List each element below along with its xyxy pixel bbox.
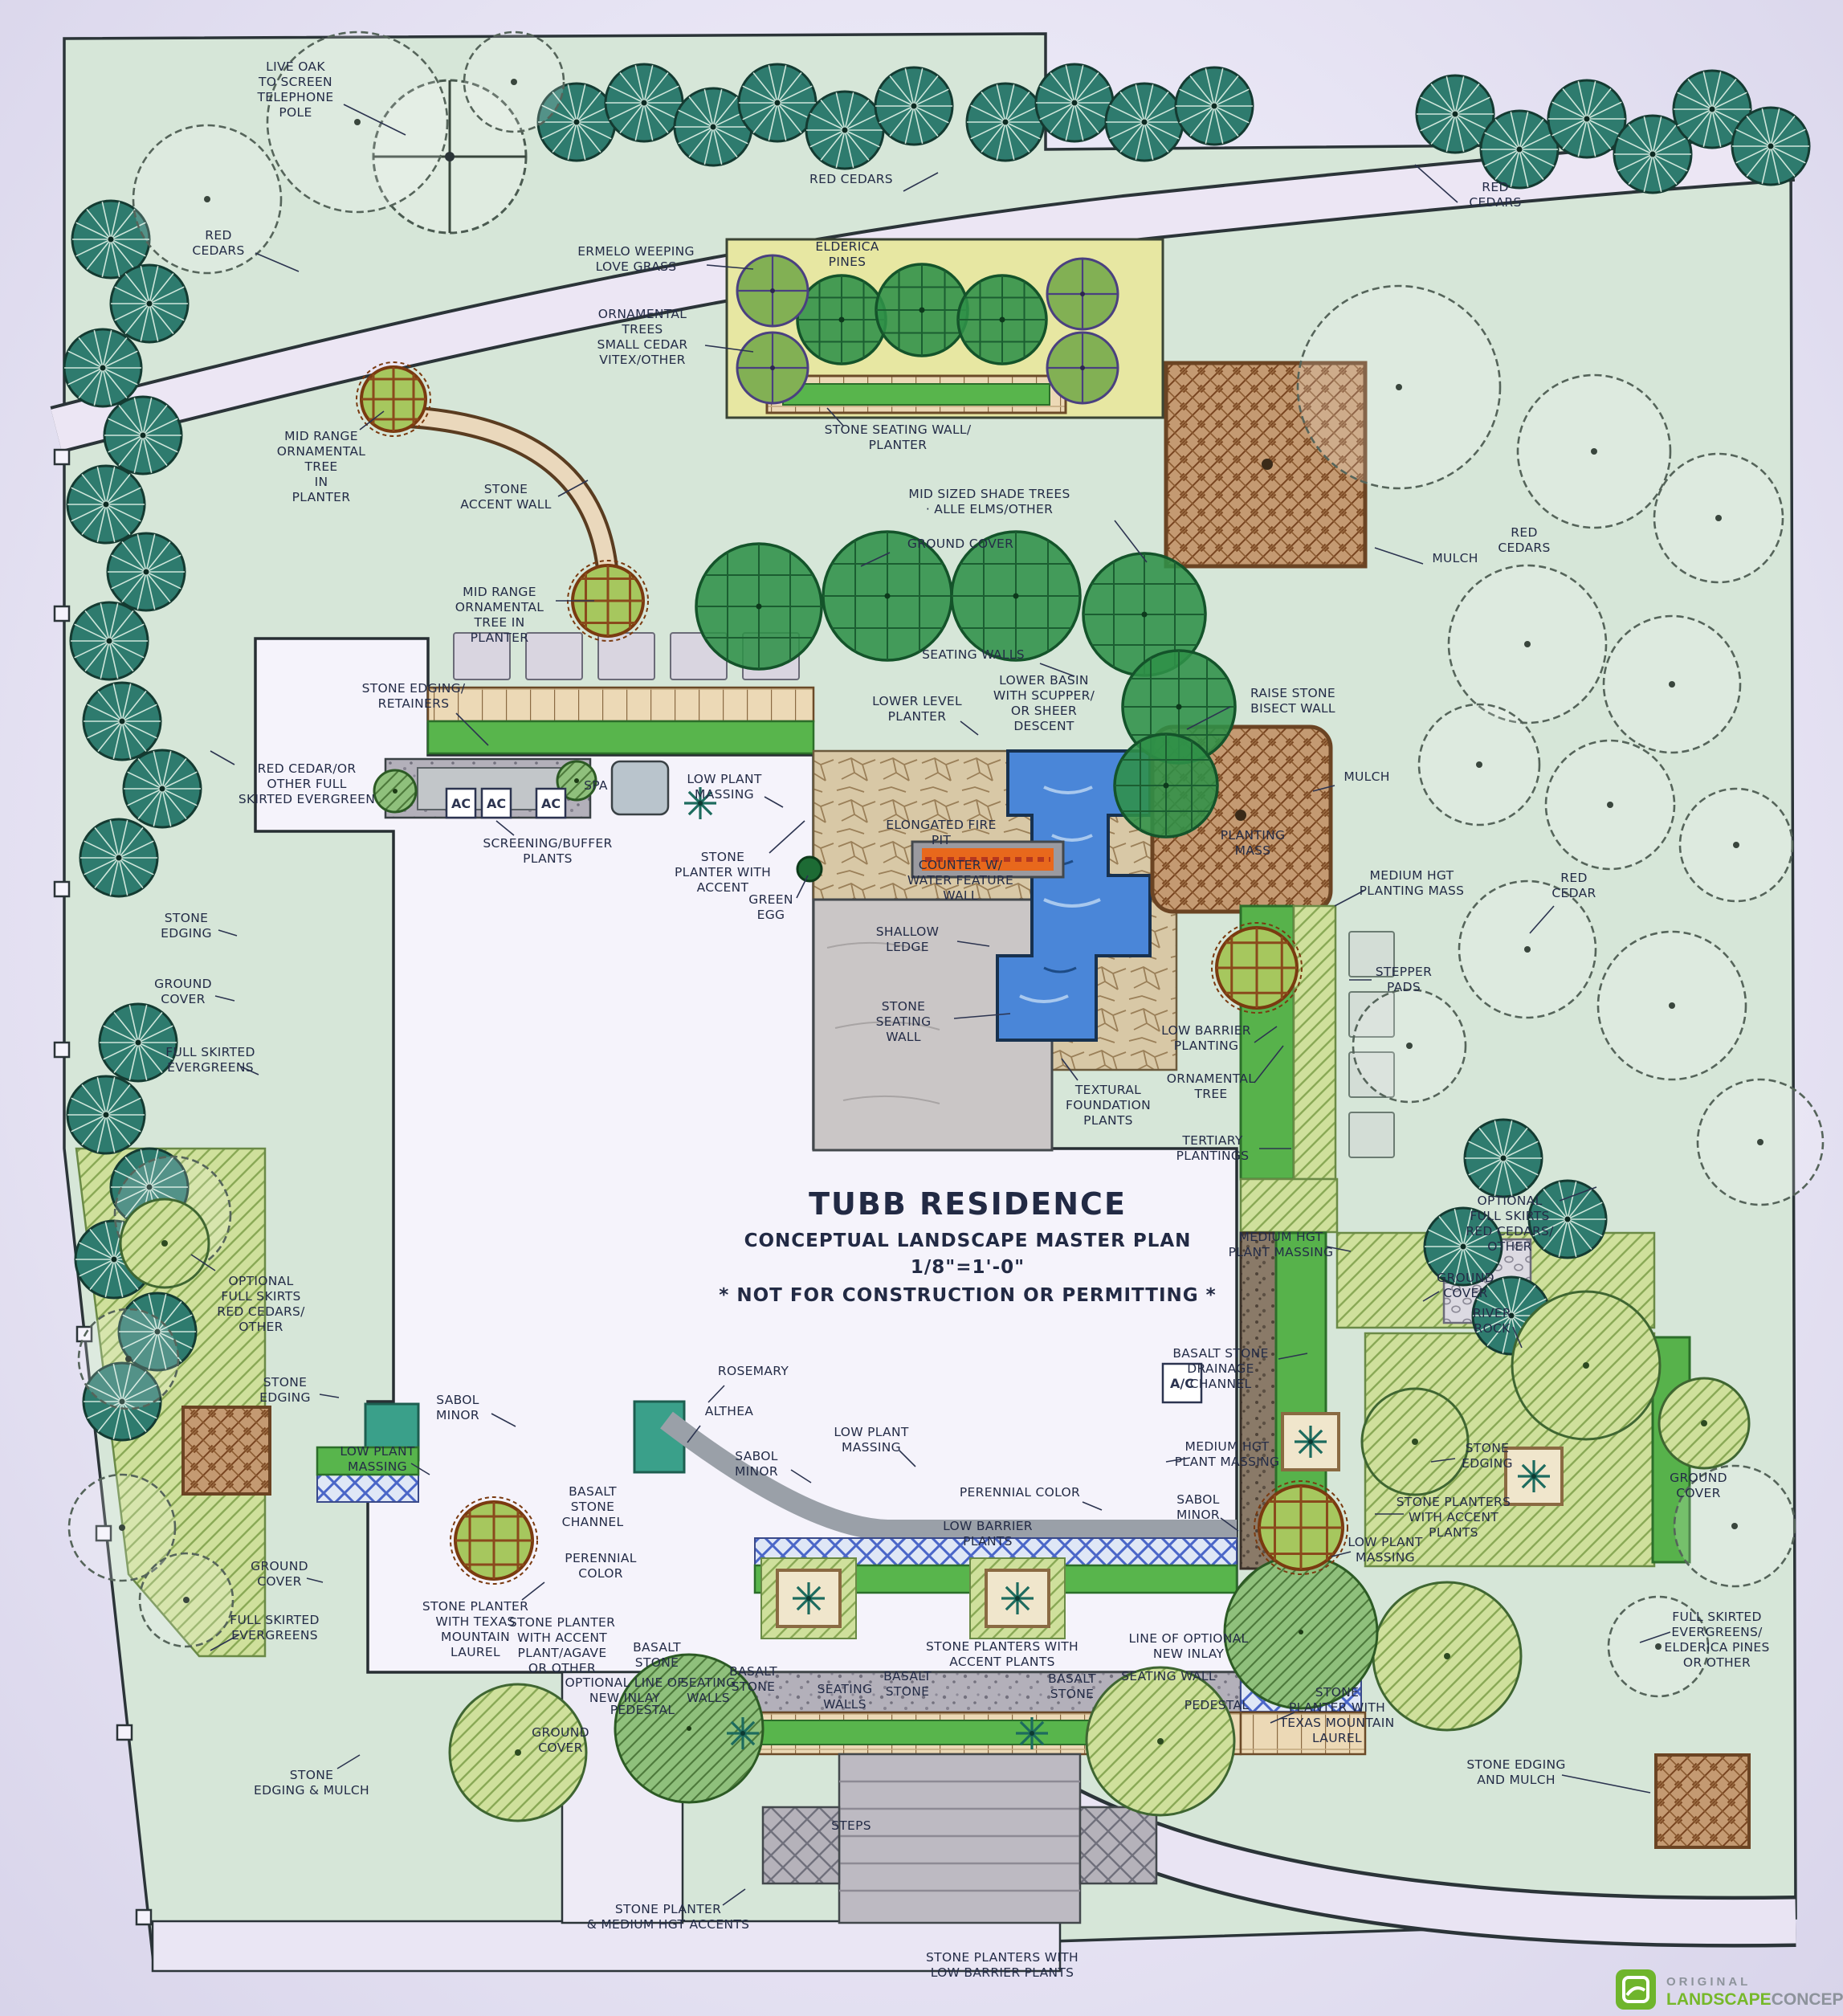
plan-annotation: STEPS — [831, 1818, 871, 1833]
plan-annotation: LOW PLANTMASSING — [834, 1425, 908, 1455]
plan-annotation: STONE PLANTERS WITHLOW BARRIER PLANTS — [926, 1950, 1078, 1980]
plan-annotation: MEDIUM HGTPLANT MASSING — [1229, 1230, 1334, 1259]
plan-annotation: GROUNDCOVER — [532, 1725, 589, 1755]
plan-annotation: MEDIUM HGTPLANTING MASS — [1360, 868, 1465, 898]
plan-annotation: PERENNIAL COLOR — [960, 1485, 1080, 1500]
green-egg-grill — [797, 857, 822, 881]
plan-annotation: LOW BARRIERPLANTING — [1161, 1023, 1251, 1053]
low-plant-massing-strip — [428, 721, 813, 753]
stone-edging-mulch-planter-right — [1656, 1755, 1749, 1847]
plan-annotation: SEATINGWALLS — [681, 1675, 736, 1705]
plan-annotation: BASALTSTONE — [633, 1640, 681, 1670]
plan-annotation: PEDESTAL — [1184, 1698, 1250, 1712]
plan-title: TUBB RESIDENCE — [809, 1186, 1127, 1222]
logo-word-concepts: CONCEPTS — [1772, 1990, 1843, 2009]
plan-annotation: MID SIZED SHADE TREES· ALLE ELMS/OTHER — [908, 487, 1070, 516]
plan-annotation: GROUNDCOVER — [251, 1559, 308, 1589]
plan-annotation: RED CEDARS — [809, 172, 893, 186]
plan-annotation: LOW PLANTMASSING — [1348, 1535, 1422, 1565]
plan-annotation: ORNAMENTALTREESSMALL CEDARVITEX/OTHER — [597, 307, 688, 367]
plan-annotation: STONEEDGING — [1462, 1441, 1513, 1471]
plan-annotation: MULCH — [1344, 769, 1389, 784]
plan-annotation: STONEEDGING — [259, 1375, 311, 1405]
plan-annotation: SABOLMINOR — [1176, 1492, 1220, 1522]
logo: ORIGINAL LANDSCAPECONCEPTS — [1616, 1969, 1843, 2010]
plan-annotation: FULL SKIRTEDEVERGREENS — [230, 1613, 319, 1643]
plan-annotation: MEDIUM HGTPLANT MASSING — [1175, 1439, 1280, 1469]
ac-unit-label: AC — [451, 796, 471, 811]
plan-annotation: SEATINGWALLS — [818, 1682, 873, 1712]
spa — [612, 761, 668, 814]
plan-annotation: MULCH — [1432, 551, 1478, 565]
stone-edging-mulch-planter — [183, 1407, 270, 1494]
plan-annotation: SABOLMINOR — [735, 1449, 778, 1479]
plan-annotation: PEDESTAL — [610, 1703, 675, 1717]
plan-annotation: SABOLMINOR — [436, 1393, 479, 1422]
plan-annotation: LOW PLANTMASSING — [340, 1444, 414, 1474]
plan-annotation: BASALTSTONE — [729, 1664, 777, 1694]
logo-word-original: ORIGINAL — [1666, 1975, 1751, 1989]
plan-annotation: BASALTSTONE — [883, 1669, 932, 1699]
plan-annotation: RAISE STONEBISECT WALL — [1250, 686, 1335, 716]
logo-word-landscape: LANDSCAPE — [1666, 1990, 1772, 2009]
plan-annotation: RIVERROCK — [1473, 1306, 1511, 1336]
plan-annotation: BASALTSTONE — [1048, 1671, 1096, 1701]
ac-unit-label: AC — [487, 796, 506, 811]
plan-annotation: GROUND COVER — [907, 537, 1013, 551]
plan-subtitle: CONCEPTUAL LANDSCAPE MASTER PLAN — [744, 1230, 1192, 1251]
plan-annotation: BASALTSTONECHANNEL — [562, 1484, 624, 1529]
plan-scale: 1/8"=1'-0" — [911, 1257, 1025, 1278]
plan-annotation: GROUNDCOVER — [1670, 1471, 1727, 1500]
plan-annotation: GROUNDCOVER — [154, 977, 212, 1006]
plan-annotation: SEATING WALLS — [922, 647, 1025, 662]
plan-annotation: LOW PLANTMASSING — [687, 772, 761, 802]
landscape-plan-sheet: TUBB RESIDENCE CONCEPTUAL LANDSCAPE MAST… — [0, 0, 1843, 2016]
plan-annotation: SEATING WALL — [1121, 1669, 1216, 1683]
plan-annotation: TERTIARYPLANTINGS — [1176, 1133, 1250, 1163]
ac-unit-label: AC — [541, 796, 561, 811]
plan-drawing: TUBB RESIDENCE CONCEPTUAL LANDSCAPE MAST… — [0, 0, 1843, 2016]
plan-annotation: GROUNDCOVER — [1437, 1271, 1494, 1300]
plan-annotation: SPA — [584, 778, 608, 793]
svg-text:LANDSCAPECONCEPTS: LANDSCAPECONCEPTS — [1666, 1990, 1843, 2009]
plan-annotation: STONEEDGING — [161, 911, 212, 941]
plan-annotation: ALTHEA — [705, 1404, 754, 1418]
plan-disclaimer: * NOT FOR CONSTRUCTION OR PERMITTING * — [719, 1285, 1216, 1306]
plan-annotation: FULL SKIRTEDEVERGREENS — [165, 1045, 255, 1075]
plan-annotation: STONE EDGINGAND MULCH — [1466, 1757, 1565, 1787]
plan-annotation: ROSEMARY — [718, 1364, 789, 1378]
